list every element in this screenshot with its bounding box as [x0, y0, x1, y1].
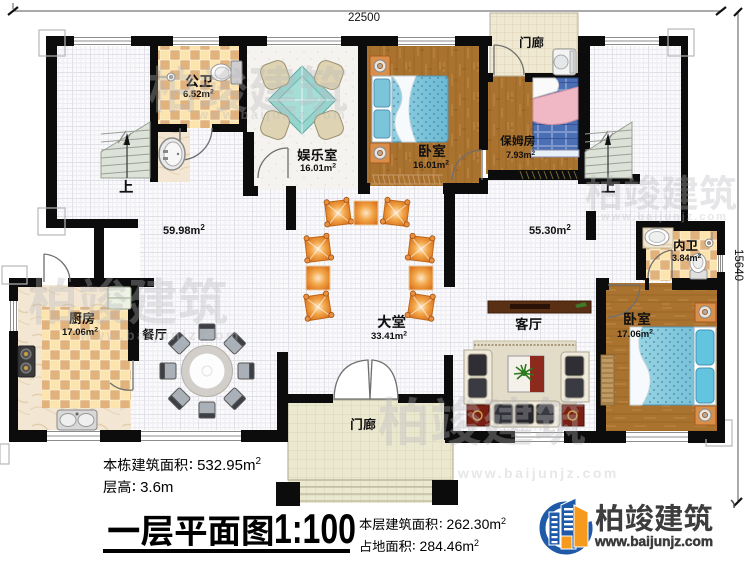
- svg-text:55.30m2: 55.30m2: [529, 223, 571, 237]
- svg-text:59.98m2: 59.98m2: [163, 223, 205, 237]
- svg-text:www.baijunjz.com: www.baijunjz.com: [457, 465, 619, 481]
- svg-text:∶ 3.6m: ∶ 3.6m: [132, 479, 173, 496]
- svg-text:www.baijunjz.com: www.baijunjz.com: [600, 211, 728, 223]
- svg-text:22500: 22500: [348, 12, 380, 24]
- svg-text:1:100: 1:100: [274, 505, 356, 552]
- svg-text:16.01m2: 16.01m2: [413, 160, 449, 171]
- svg-text:15640: 15640: [732, 249, 744, 281]
- svg-text:∶ 532.95m2: ∶ 532.95m2: [189, 456, 261, 474]
- svg-text:17.06m2: 17.06m2: [617, 329, 653, 340]
- svg-text:33.41m2: 33.41m2: [371, 331, 407, 342]
- svg-text:www.baijunjz.com: www.baijunjz.com: [79, 327, 241, 343]
- svg-text:3.84m2: 3.84m2: [672, 253, 702, 263]
- svg-text:∶ 262.30m2: ∶ 262.30m2: [439, 516, 506, 532]
- svg-text:www.baijunjz.com: www.baijunjz.com: [197, 107, 347, 122]
- svg-text:www.baijunjz.com: www.baijunjz.com: [594, 534, 713, 549]
- svg-text:∶ 284.46m2: ∶ 284.46m2: [412, 538, 479, 554]
- svg-text:16.01m2: 16.01m2: [300, 163, 336, 174]
- svg-text:7.93m2: 7.93m2: [506, 150, 536, 160]
